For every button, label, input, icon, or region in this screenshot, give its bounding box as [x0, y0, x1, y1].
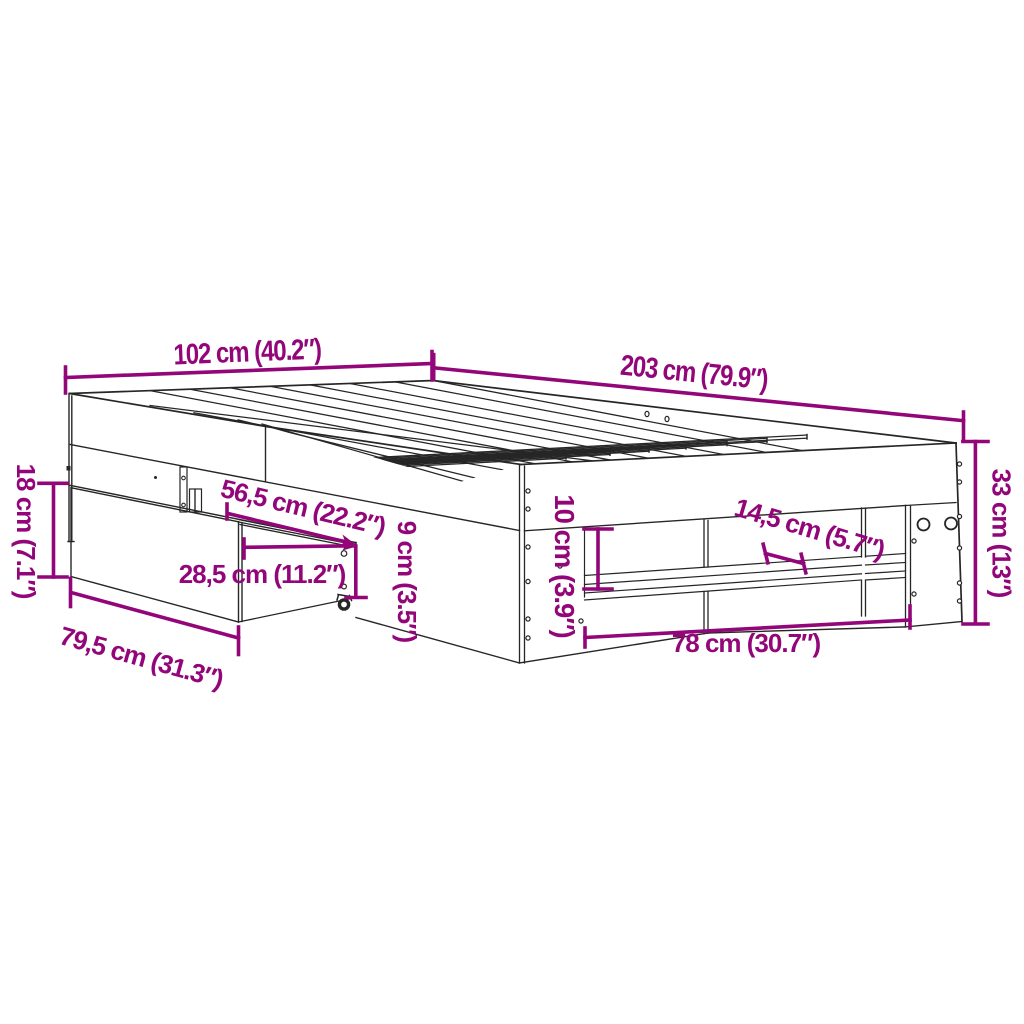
svg-text:78 cm (30.7″): 78 cm (30.7″) — [672, 628, 821, 658]
svg-text:28,5 cm (11.2″): 28,5 cm (11.2″) — [179, 559, 346, 589]
svg-text:9 cm (3.5″): 9 cm (3.5″) — [392, 521, 422, 643]
svg-text:18 cm (7.1″): 18 cm (7.1″) — [11, 464, 41, 599]
svg-text:10 cm (3.9″): 10 cm (3.9″) — [549, 494, 580, 637]
svg-text:33 cm (13″): 33 cm (13″) — [987, 469, 1017, 598]
svg-text:102 cm (40.2″): 102 cm (40.2″) — [173, 332, 322, 371]
